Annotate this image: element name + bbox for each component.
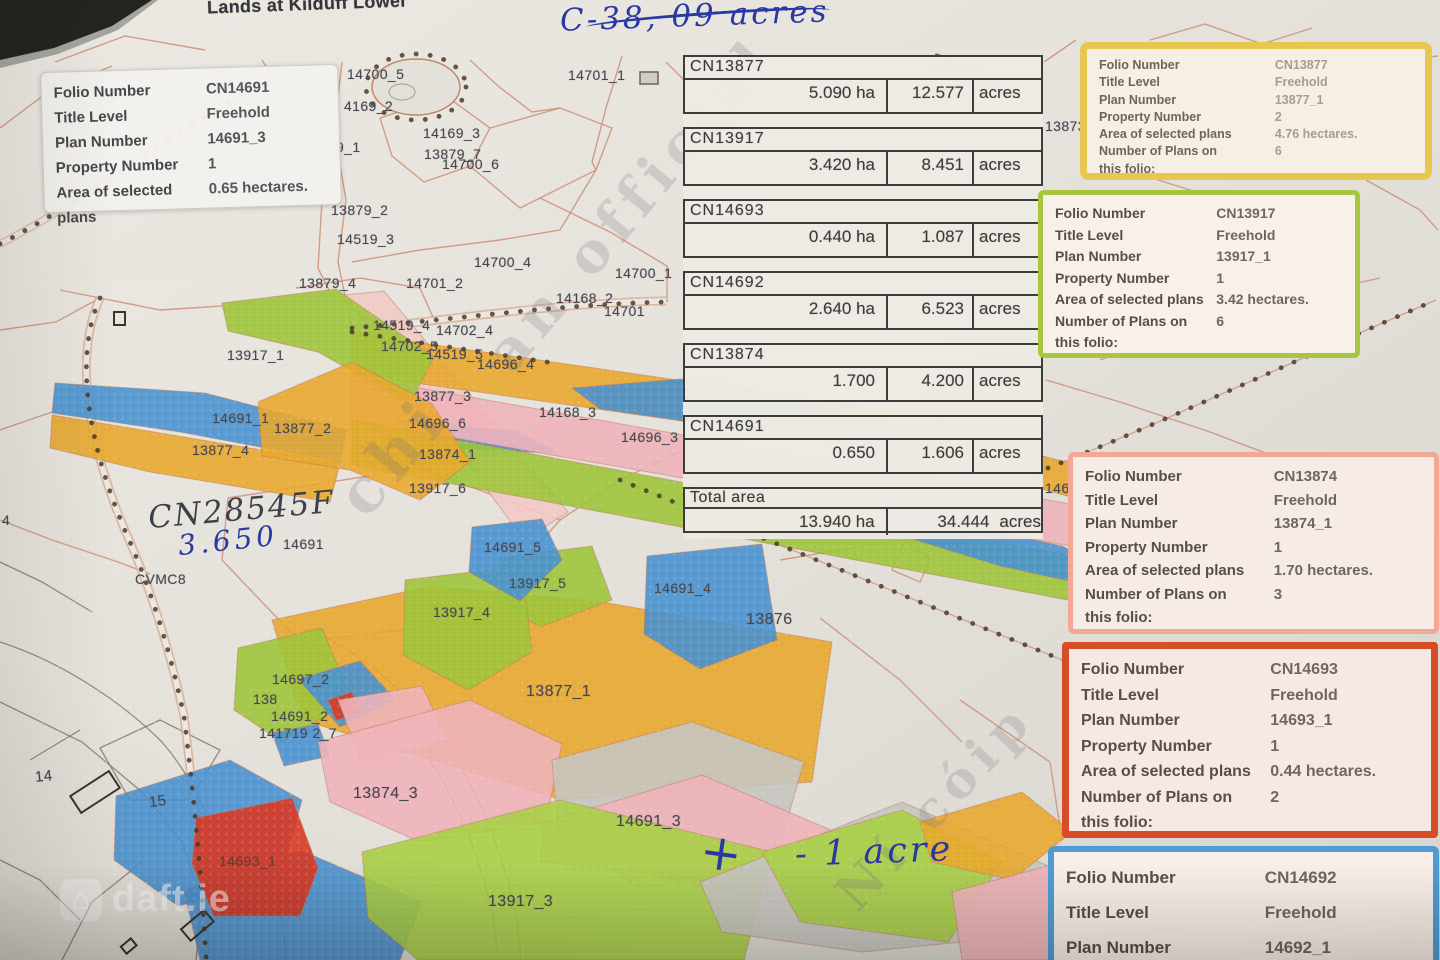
info-row: Plan Number 13877_1 <box>1099 92 1413 109</box>
table-section: CN14693 0.440 ha 1.087 acres <box>683 199 1043 258</box>
folio-info-box-cn13874: Folio Number CN13874 Title Level Freehol… <box>1068 452 1439 634</box>
hectares-value: 2.640 ha <box>685 296 886 322</box>
folio-info-box-cn14692: Folio Number CN14692 Title Level Freehol… <box>1048 846 1439 960</box>
table-section-body: 0.440 ha 1.087 acres <box>685 224 1041 256</box>
info-row: Plan Number 14693_1 <box>1081 708 1419 734</box>
info-row: Folio Number CN14692 <box>1066 860 1421 895</box>
info-row: Title Level Freehold <box>1066 895 1421 930</box>
hectares-value: 0.440 ha <box>685 224 886 250</box>
table-section-body: 1.700 4.200 acres <box>685 368 1041 400</box>
info-row: Folio Number CN14693 <box>1081 657 1419 683</box>
info-row: Area of selected plans 4.76 hectares. <box>1099 126 1413 143</box>
table-section-body: 2.640 ha 6.523 acres <box>685 296 1041 328</box>
brand-text: daft.ie <box>112 878 231 921</box>
info-row: Number of Plans on 3 <box>1085 583 1422 607</box>
table-folio-header: CN14691 <box>685 417 1041 440</box>
table-folio-header: CN14693 <box>685 201 1041 224</box>
info-row: Number of Plans on 6 <box>1055 311 1343 333</box>
table-section: CN13874 1.700 4.200 acres <box>683 343 1043 402</box>
table-section-body: 3.420 ha 8.451 acres <box>685 152 1041 184</box>
hectares-value: 3.420 ha <box>685 152 886 178</box>
acres-unit: acres <box>972 368 1021 394</box>
acres-unit: acres <box>972 296 1021 322</box>
acres-value: 12.577 <box>886 80 972 106</box>
info-row: Title Level Freehold <box>1055 225 1343 247</box>
info-row: Property Number 1 <box>1081 734 1419 760</box>
acres-value: 1.087 <box>886 224 972 250</box>
acres-unit: acres <box>972 224 1021 250</box>
info-row: Plan Number 13874_1 <box>1085 512 1422 536</box>
daft-watermark: ⌂ daft.ie <box>60 878 231 921</box>
table-folio-header: CN13877 <box>685 57 1041 80</box>
folio-info-box-cn13877: Folio Number CN13877 Title Level Freehol… <box>1080 42 1432 180</box>
info-row: Area of selected plans 0.44 hectares. <box>1081 759 1419 785</box>
folio-info-box-cn13917: Folio Number CN13917 Title Level Freehol… <box>1038 190 1360 358</box>
acres-unit: acres <box>972 152 1021 178</box>
info-row: Folio Number CN13917 <box>1055 203 1343 225</box>
table-section: CN13917 3.420 ha 8.451 acres <box>683 127 1043 186</box>
acres-value: 1.606 <box>886 440 972 466</box>
table-section: CN13877 5.090 ha 12.577 acres <box>683 55 1043 114</box>
hectares-value: 0.650 <box>685 440 886 466</box>
info-row: Property Number 2 <box>1099 109 1413 126</box>
area-summary-table: CN13877 5.090 ha 12.577 acres CN13917 3.… <box>683 55 1043 539</box>
hectares-value: 5.090 ha <box>685 80 886 106</box>
total-acres-value: 34.444 <box>886 509 990 535</box>
handwritten-acre-note: - 1 acre <box>794 829 954 874</box>
info-row: Area of selected plans 1.70 hectares. <box>1085 559 1422 583</box>
acres-value: 4.200 <box>886 368 972 394</box>
info-row: Plan Number 14692_1 <box>1066 930 1421 960</box>
acres-unit: acres <box>972 440 1021 466</box>
info-row: Area of selected plans 3.42 hectares. <box>1055 289 1343 311</box>
info-row: Property Number 1 <box>1055 268 1343 290</box>
pond <box>372 59 460 115</box>
table-section-body: 0.650 1.606 acres <box>685 440 1041 472</box>
table-section: CN14692 2.640 ha 6.523 acres <box>683 271 1043 330</box>
house-icon: ⌂ <box>60 879 102 921</box>
info-row: Number of Plans on 2 <box>1081 785 1419 811</box>
info-row: Plan Number 13917_1 <box>1055 246 1343 268</box>
info-row: this folio: <box>1085 606 1422 630</box>
hectares-value: 1.700 <box>685 368 886 394</box>
handwritten-plus-mark: + <box>696 821 746 884</box>
table-folio-header: CN13917 <box>685 129 1041 152</box>
info-row: Folio Number CN13877 <box>1099 57 1413 74</box>
table-folio-header: CN13874 <box>685 345 1041 368</box>
total-hectares-value: 13.940 ha <box>685 509 886 535</box>
scanned-land-registry-map: chi an official Ní cóip 14700_5 4169_2 1… <box>0 0 1440 960</box>
table-section-body: 5.090 ha 12.577 acres <box>685 80 1041 112</box>
total-acres-unit: acres <box>989 509 1041 535</box>
folio-info-box-cn14691: Folio Number CN14691 Title Level Freehol… <box>40 64 342 213</box>
acres-unit: acres <box>972 80 1021 106</box>
folio-info-box-cn14693: Folio Number CN14693 Title Level Freehol… <box>1062 642 1438 838</box>
acres-value: 6.523 <box>886 296 972 322</box>
info-row: this folio: <box>1099 161 1413 178</box>
total-area-label: Total area <box>685 489 1041 509</box>
table-section: CN14691 0.650 1.606 acres <box>683 415 1043 474</box>
acres-value: 8.451 <box>886 152 972 178</box>
info-row: Title Level Freehold <box>1081 683 1419 709</box>
info-row: Title Level Freehold <box>1085 489 1422 513</box>
table-folio-header: CN14692 <box>685 273 1041 296</box>
info-row: this folio: <box>1081 810 1419 836</box>
table-total-section: Total area 13.940 ha 34.444 acres <box>683 487 1043 533</box>
info-row: Area of selected plans 0.65 hectares. <box>56 173 329 231</box>
info-row: Property Number 1 <box>1085 536 1422 560</box>
info-row: Number of Plans on 6 <box>1099 143 1413 160</box>
info-row: Title Level Freehold <box>1099 74 1413 91</box>
info-row: Folio Number CN13874 <box>1085 465 1422 489</box>
info-row: this folio: <box>1055 332 1343 354</box>
